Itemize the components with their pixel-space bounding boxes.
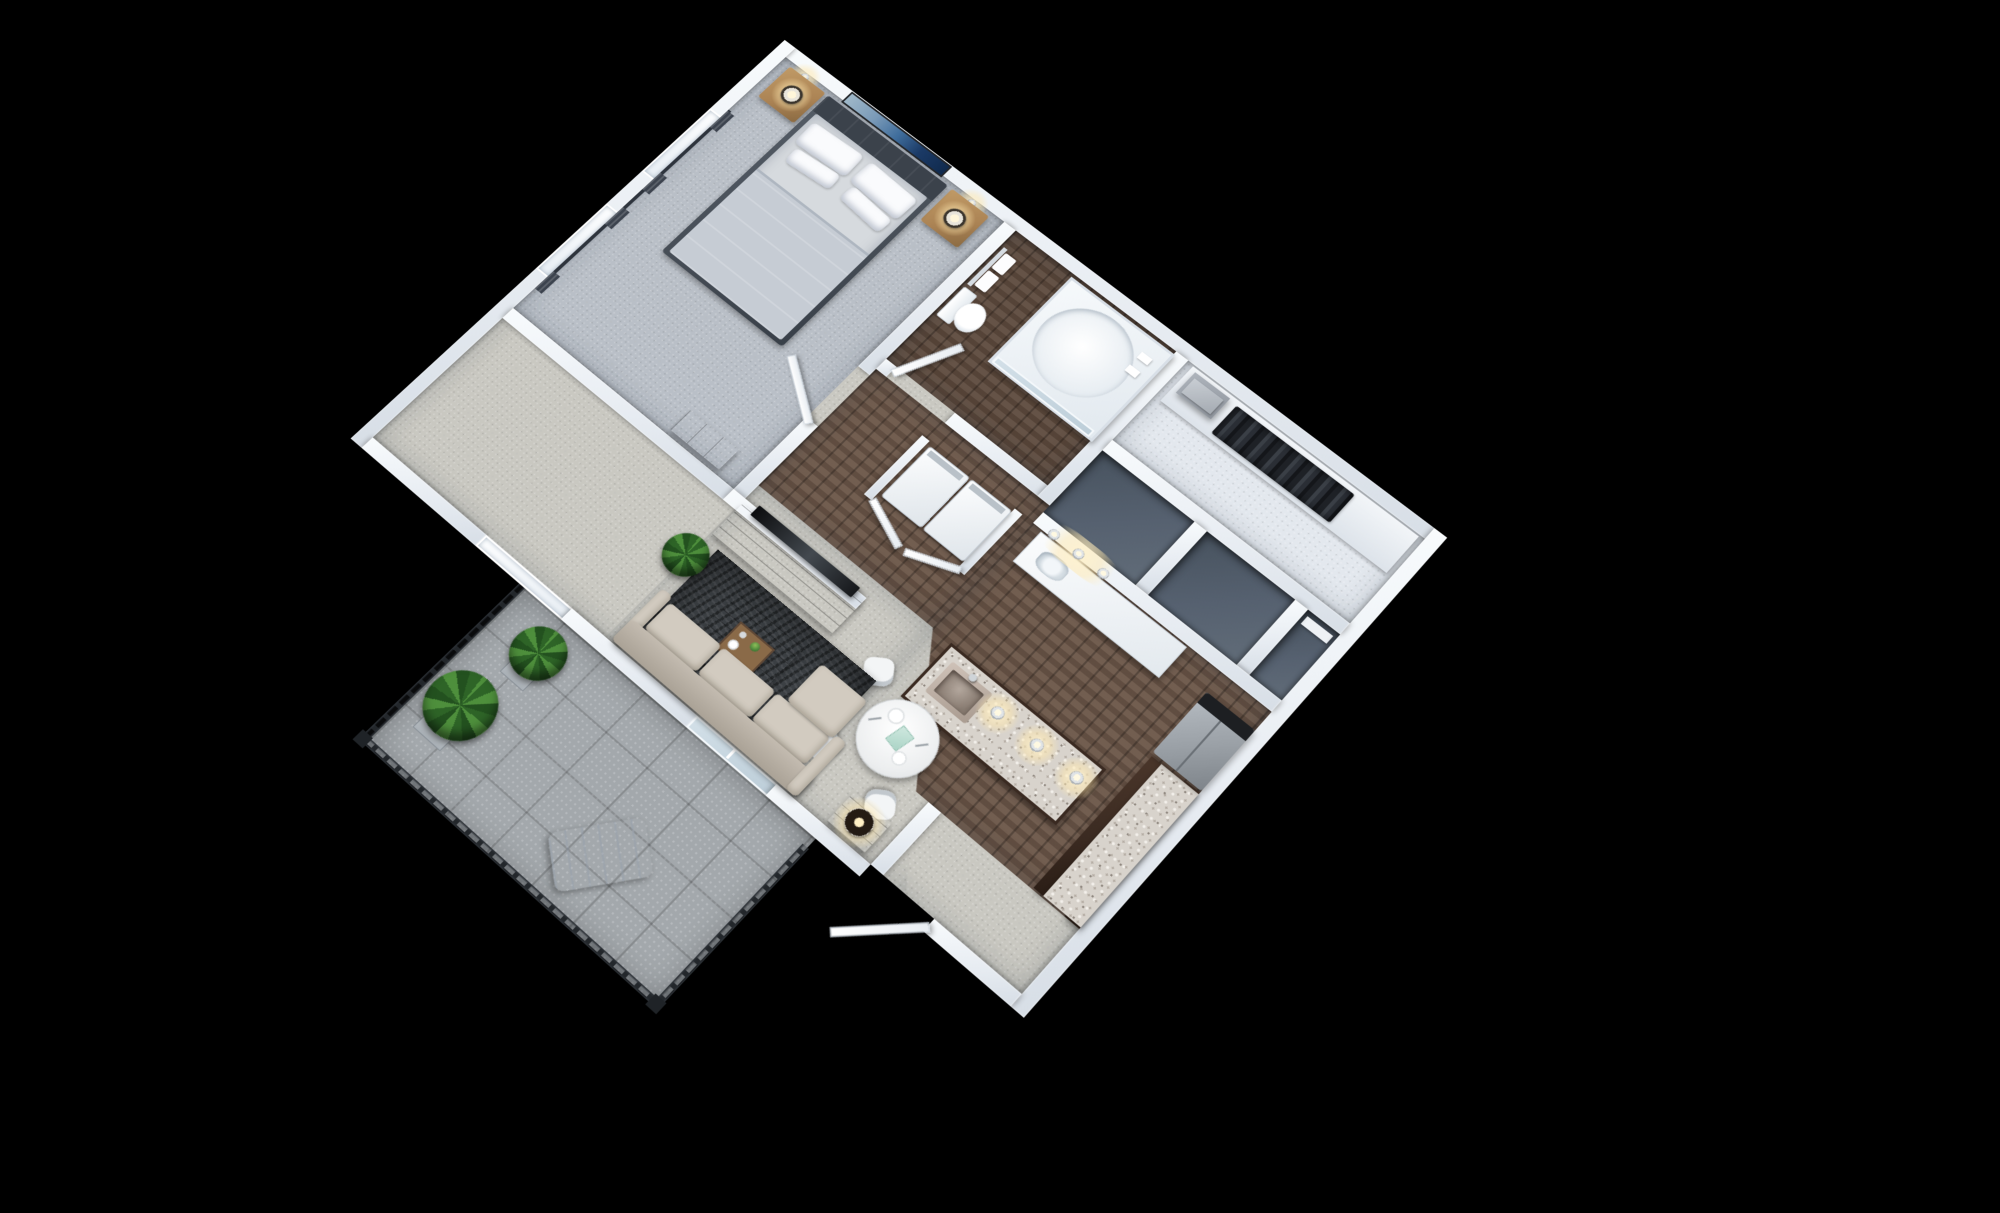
entry-door	[830, 922, 930, 937]
render-canvas	[0, 0, 2000, 1125]
floorplan	[176, 40, 1447, 1213]
